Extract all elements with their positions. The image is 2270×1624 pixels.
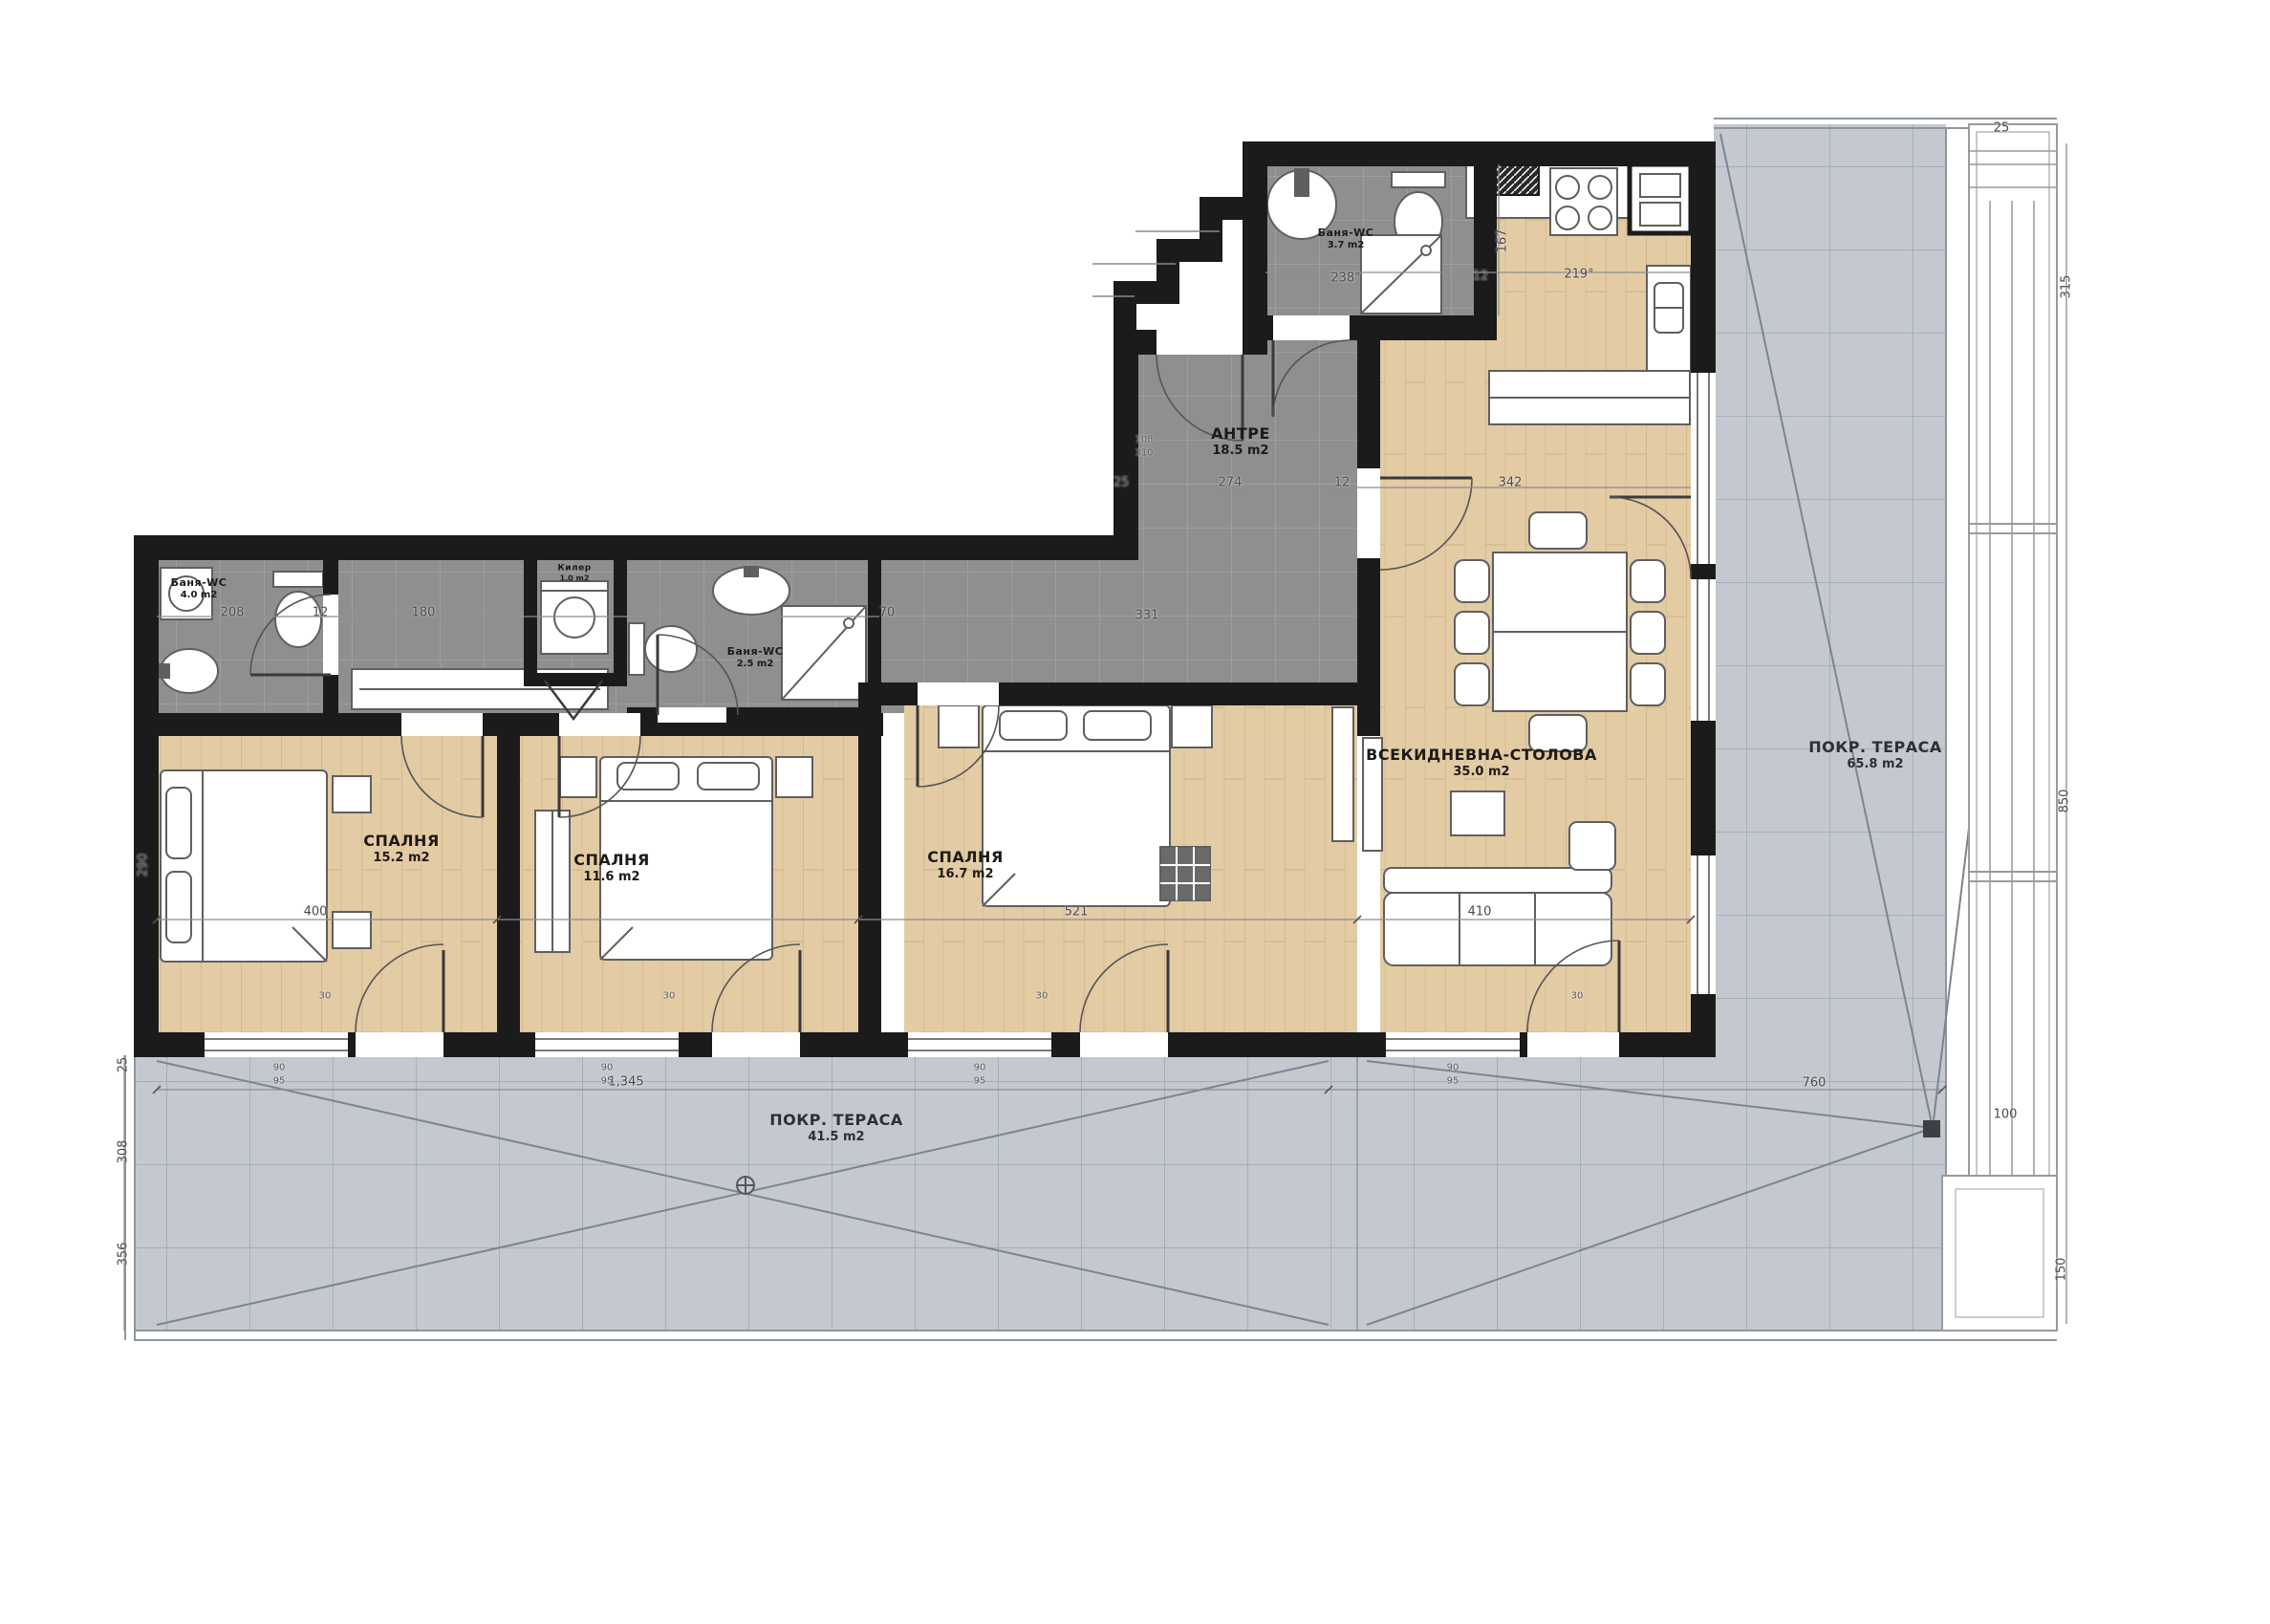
dimension-label: 108: [1135, 435, 1153, 445]
dimension-label: 315: [2060, 275, 2074, 299]
dimension-label: 95: [974, 1076, 986, 1087]
nightstand: [333, 912, 371, 948]
room-label-antre: АНТРЕ 18.5 m2: [1211, 424, 1270, 459]
dimension-label: 850: [2058, 790, 2072, 813]
floor-plan-page: Баня-WC 3.7 m2 АНТРЕ 18.5 m2 ВСЕКИДНЕВНА…: [0, 0, 2270, 1624]
room-label-living-dining: ВСЕКИДНЕВНА-СТОЛОВА 35.0 m2: [1366, 746, 1597, 780]
entrance-steps: [1125, 166, 1254, 330]
dimension-label: 238°: [1330, 271, 1360, 286]
room-label-terrace-bottom: ПОКР. ТЕРАСА 41.5 m2: [769, 1111, 903, 1145]
dimension-label: 30: [663, 991, 676, 1002]
wardrobe-3: [1332, 707, 1353, 841]
dimension-label: 290: [137, 854, 151, 877]
dimension-label: 90: [273, 1063, 286, 1073]
bed-1: [161, 770, 327, 962]
coffee-table: [1451, 791, 1504, 835]
dimension-label: 90: [601, 1063, 614, 1073]
toilet-icon: [629, 623, 697, 675]
armchair-3: [1160, 847, 1210, 900]
room-label-bath-left: Баня-WC 4.0 m2: [171, 576, 227, 601]
dimension-label: 12: [313, 606, 329, 620]
washing-machine-icon: [541, 581, 608, 654]
room-label-bath-top: Баня-WC 3.7 m2: [1318, 227, 1374, 251]
fridge-icon: [1630, 164, 1691, 233]
floor-plan-drawing: [0, 0, 2270, 1624]
sink-icon: [713, 566, 789, 615]
dimension-label: 274: [1219, 476, 1243, 490]
dimension-label: 150: [2055, 1258, 2069, 1282]
dimension-label: 356: [117, 1243, 131, 1267]
dimension-label: 219°: [1564, 268, 1593, 282]
dimension-label: 30: [1571, 991, 1584, 1002]
room-label-bath-mid: Баня-WC 2.5 m2: [727, 645, 784, 670]
sink-icon: [159, 649, 218, 693]
dimension-label: 310: [1135, 448, 1153, 459]
dimension-label: 760: [1803, 1076, 1827, 1091]
dimension-label: 95: [273, 1076, 286, 1087]
dimension-label: 180: [412, 606, 436, 620]
kitchen-island: [1489, 371, 1690, 424]
room-label-bedroom-3: СПАЛНЯ 16.7 m2: [927, 848, 1004, 882]
dimension-label: 95: [601, 1076, 614, 1087]
room-label-closet: Килер 1.0 m2: [557, 563, 591, 583]
dimension-label: 70: [879, 606, 896, 620]
dimension-label: 90: [974, 1063, 986, 1073]
bed-3: [983, 705, 1170, 906]
dimension-label: 100: [1994, 1108, 2018, 1122]
room-label-terrace-right: ПОКР. ТЕРАСА 65.8 m2: [1808, 738, 1942, 772]
dimension-label: 25: [1994, 121, 2010, 136]
room-label-bedroom-1: СПАЛНЯ 15.2 m2: [363, 832, 440, 866]
room-label-bedroom-2: СПАЛНЯ 11.6 m2: [573, 851, 650, 885]
dimension-label: 342: [1499, 476, 1523, 490]
dimension-label: 400: [304, 905, 328, 920]
nightstand: [333, 776, 371, 812]
dimension-label: 1,345: [608, 1075, 643, 1090]
wardrobe-2: [535, 811, 570, 952]
stove-icon: [1550, 168, 1617, 235]
railing-strip: [1969, 124, 2057, 1233]
dimension-label: 410: [1468, 905, 1492, 920]
dimension-label: 12: [1334, 476, 1351, 490]
terrace-corner-notch: [1942, 1176, 2057, 1331]
dimension-label: 95: [1447, 1076, 1459, 1087]
dimension-label: 208: [221, 606, 245, 620]
dimension-label: 30: [319, 991, 332, 1002]
dimension-label: 308: [117, 1140, 131, 1164]
dimension-label: 331: [1135, 609, 1159, 623]
dimension-label: 30: [1036, 991, 1049, 1002]
nightstand: [776, 757, 812, 797]
dimension-label: 25: [117, 1057, 131, 1073]
dimension-label: 25: [1113, 476, 1130, 490]
nightstand: [939, 705, 979, 747]
dimension-label: 521: [1065, 905, 1089, 920]
shower-icon: [782, 606, 866, 700]
dimension-label: 12: [1473, 270, 1489, 284]
nightstand: [1172, 705, 1212, 747]
nightstand: [560, 757, 596, 797]
dimension-label: 90: [1447, 1063, 1459, 1073]
dimension-label: 167: [1496, 229, 1510, 253]
